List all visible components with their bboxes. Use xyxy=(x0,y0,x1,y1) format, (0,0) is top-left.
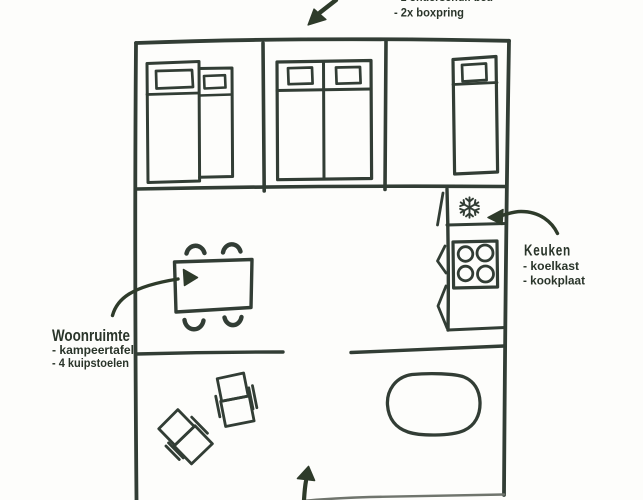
svg-text:- kampeertafel: - kampeertafel xyxy=(52,345,134,357)
svg-text:- 2x boxpring: - 2x boxpring xyxy=(394,8,464,20)
svg-text:- kookplaat: - kookplaat xyxy=(523,274,585,288)
svg-text:- 1 onderschuif bed: - 1 onderschuif bed xyxy=(394,0,493,4)
svg-text:Keuken: Keuken xyxy=(524,243,571,260)
svg-text:- 4 kuipstoelen: - 4 kuipstoelen xyxy=(52,358,129,370)
svg-text:- koelkast: - koelkast xyxy=(523,259,579,273)
svg-text:Woonruimte: Woonruimte xyxy=(52,327,130,345)
